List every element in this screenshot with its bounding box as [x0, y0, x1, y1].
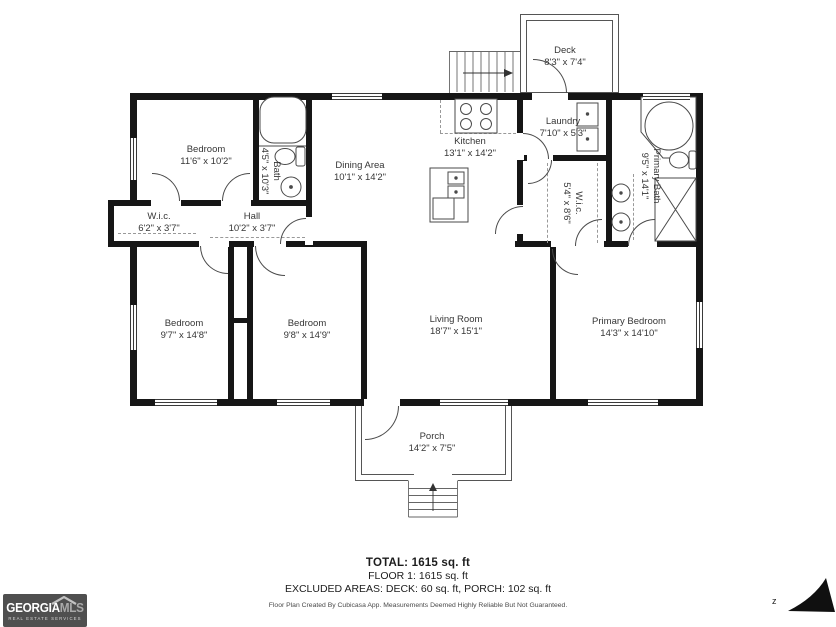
- room-dimensions: 14'2" x 7'5": [409, 443, 456, 455]
- room-name: Living Room: [430, 314, 483, 326]
- room-dimensions: 9'8" x 14'9": [284, 330, 331, 342]
- wall-segment: [228, 247, 234, 406]
- summary-footer: TOTAL: 1615 sq. ft FLOOR 1: 1615 sq. ft …: [0, 557, 836, 609]
- wall-segment: [130, 93, 703, 100]
- logo-tagline: REAL ESTATE SERVICES: [3, 617, 87, 621]
- double-sink-icon: [612, 184, 630, 231]
- door-swing: [222, 173, 250, 201]
- door-swing: [495, 206, 523, 234]
- kitchen-island-icon: [430, 168, 468, 222]
- room-dimensions: 10'1" x 14'2": [334, 172, 386, 184]
- wall-segment: [606, 93, 612, 247]
- window: [130, 305, 137, 350]
- room-name: W.i.c.: [572, 182, 584, 224]
- room-name: Bedroom: [180, 144, 231, 156]
- room-label: Kitchen13'1" x 14'2": [444, 136, 496, 160]
- sink-icon: [281, 177, 301, 197]
- room-label: Bedroom9'8" x 14'9": [284, 318, 331, 342]
- room-dimensions: 14'3" x 14'10": [592, 328, 666, 340]
- wall-segment: [108, 241, 367, 247]
- room-dimensions: 9'7" x 14'8": [161, 330, 208, 342]
- wall-segment: [550, 245, 556, 406]
- excluded-areas-text: EXCLUDED AREAS: DECK: 60 sq. ft, PORCH: …: [0, 583, 836, 595]
- logo-brand-primary: GEORGIA: [6, 601, 60, 615]
- logo-brand-secondary: MLS: [60, 601, 84, 615]
- room-label: W.i.c.5'4" x 8'6": [560, 182, 584, 224]
- room-name: Primary Bedroom: [592, 316, 666, 328]
- window: [155, 399, 217, 406]
- wall-segment: [361, 245, 367, 406]
- room-dimensions: 10'2" x 3'7": [229, 223, 276, 235]
- room-name: Dining Area: [334, 160, 386, 172]
- toilet-icon: [670, 151, 697, 169]
- room-name: Bath: [270, 148, 282, 195]
- total-area-text: TOTAL: 1615 sq. ft: [0, 557, 836, 569]
- room-name: Bedroom: [284, 318, 331, 330]
- wall-opening: [532, 93, 568, 100]
- wall-opening: [129, 206, 138, 241]
- room-dimensions: 11'6" x 10'2": [180, 156, 231, 168]
- window: [130, 138, 137, 180]
- room-name: Hall: [229, 211, 276, 223]
- room-dimensions: 6'2" x 3'7": [138, 223, 180, 235]
- room-label: Bedroom11'6" x 10'2": [180, 144, 231, 168]
- room-dimensions: 4'5" x 10'3": [258, 148, 270, 195]
- window: [277, 399, 330, 406]
- wall-opening: [305, 217, 313, 245]
- wall-segment: [696, 93, 703, 406]
- georgia-mls-logo: GEORGIAMLS REAL ESTATE SERVICES: [3, 594, 87, 627]
- door-swing: [365, 406, 399, 440]
- door-swing: [200, 246, 228, 274]
- door-swing: [152, 173, 180, 201]
- dashed-counter-line: [547, 163, 548, 243]
- room-label: Dining Area10'1" x 14'2": [334, 160, 386, 184]
- room-dimensions: 9'5" x 14'1": [638, 149, 650, 204]
- wall-opening: [364, 399, 400, 406]
- logo-brand: GEORGIAMLS: [6, 602, 85, 615]
- room-label: Bedroom9'7" x 14'8": [161, 318, 208, 342]
- door-swing: [255, 246, 285, 276]
- door-swing: [528, 160, 552, 184]
- room-name: W.i.c.: [138, 211, 180, 223]
- room-label: Bath4'5" x 10'3": [258, 148, 282, 195]
- room-name: Primary Bath: [650, 149, 662, 204]
- room-label: Living Room18'7" x 15'1": [430, 314, 483, 338]
- room-label: W.i.c.6'2" x 3'7": [138, 211, 180, 235]
- stove-icon: [455, 99, 497, 133]
- room-label: Laundry7'10" x 5'3": [540, 116, 587, 140]
- wall-segment: [108, 200, 114, 247]
- deck-stairs-icon: [449, 51, 520, 93]
- door-swing: [280, 218, 306, 244]
- room-label: Primary Bath9'5" x 14'1": [638, 149, 662, 204]
- room-label: Deck8'3" x 7'4": [544, 45, 586, 69]
- room-dimensions: 8'3" x 7'4": [544, 57, 586, 69]
- room-dimensions: 5'4" x 8'6": [560, 182, 572, 224]
- window: [643, 93, 690, 100]
- room-dimensions: 7'10" x 5'3": [540, 128, 587, 140]
- dashed-counter-line: [440, 133, 516, 134]
- room-dimensions: 13'1" x 14'2": [444, 148, 496, 160]
- disclaimer-text: Floor Plan Created By Cubicasa App. Meas…: [0, 602, 836, 609]
- bathtub-icon: [259, 97, 306, 146]
- wall-segment: [108, 200, 312, 206]
- room-label: Hall10'2" x 3'7": [229, 211, 276, 235]
- room-label: Porch14'2" x 7'5": [409, 431, 456, 455]
- porch-stairs-icon: [409, 481, 458, 518]
- floor-plan-canvas: z Deck8'3" x 7'4"Bedroom11'6" x 10'2"Bat…: [0, 0, 836, 627]
- room-name: Porch: [409, 431, 456, 443]
- wall-segment: [228, 318, 253, 323]
- window: [696, 302, 703, 348]
- room-name: Kitchen: [444, 136, 496, 148]
- window: [440, 399, 508, 406]
- wall-segment: [247, 247, 253, 406]
- window: [588, 399, 658, 406]
- room-name: Deck: [544, 45, 586, 57]
- dashed-counter-line: [440, 100, 441, 133]
- room-label: Primary Bedroom14'3" x 14'10": [592, 316, 666, 340]
- floor-plan-page: z Deck8'3" x 7'4"Bedroom11'6" x 10'2"Bat…: [0, 0, 836, 627]
- room-name: Laundry: [540, 116, 587, 128]
- room-dimensions: 18'7" x 15'1": [430, 326, 483, 338]
- floor-area-text: FLOOR 1: 1615 sq. ft: [0, 570, 836, 582]
- window: [332, 93, 382, 100]
- room-name: Bedroom: [161, 318, 208, 330]
